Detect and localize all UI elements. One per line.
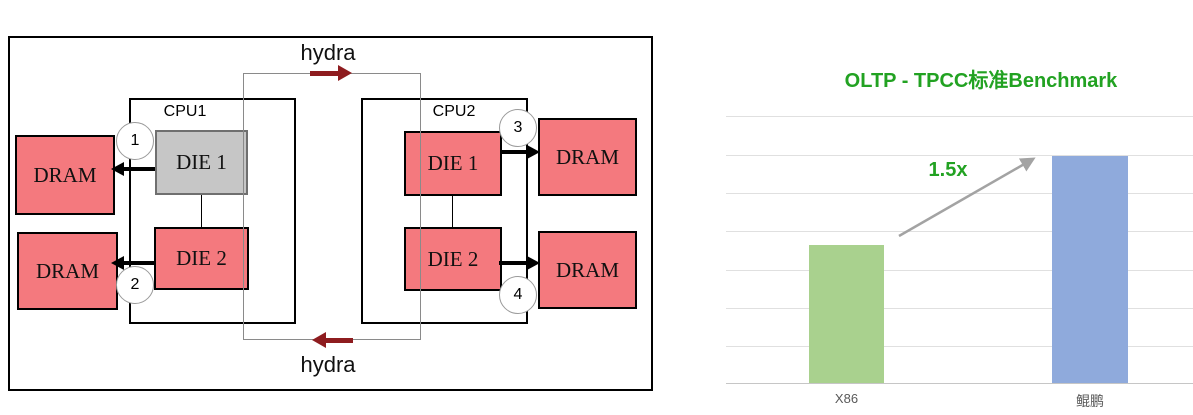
dram-box-bottom-right: DRAM: [538, 231, 637, 309]
gridline: [726, 116, 1193, 117]
arrow-head: [527, 145, 540, 159]
arrow-head: [338, 65, 352, 81]
slide-canvas: hydra hydra CPU1 CPU2 DRAM DRAM DRAM DRA…: [0, 0, 1193, 415]
memory-arrow-die2-right-icon: [499, 256, 540, 270]
hydra-arrow-right-icon: [310, 65, 352, 81]
arrow-shaft: [326, 338, 353, 343]
cpu1-die2-box: DIE 2: [154, 227, 249, 290]
cpu1-die-connector-line: [201, 195, 202, 227]
growth-annotation: 1.5x: [916, 159, 980, 182]
x-axis-label-x86: X86: [809, 391, 884, 406]
arrow-shaft: [124, 167, 155, 171]
arrow-shaft: [124, 261, 154, 265]
marker-circle-4: 4: [499, 276, 537, 314]
dram-box-top-right: DRAM: [538, 118, 637, 196]
cpu1-die1-box: DIE 1: [155, 130, 248, 195]
dram-box-top-left: DRAM: [15, 135, 115, 215]
arrow-shaft: [502, 150, 527, 154]
hydra-arrow-left-icon: [312, 332, 353, 348]
hydra-interconnect-loop: [243, 73, 421, 340]
memory-arrow-die1-right-icon: [502, 145, 540, 159]
hydra-top-label: hydra: [294, 40, 362, 66]
cpu2-die-connector-line: [452, 196, 453, 227]
dram-box-bottom-left: DRAM: [17, 232, 118, 310]
cpu1-label: CPU1: [129, 103, 241, 121]
bar-kunpeng: [1052, 156, 1128, 383]
bar-x86: [809, 245, 884, 383]
arrow-shaft: [310, 71, 338, 76]
x-axis-label-kunpeng: 鲲鹏: [1052, 391, 1128, 411]
arrow-head: [312, 332, 326, 348]
arrow-head: [111, 162, 124, 176]
marker-circle-1: 1: [116, 122, 154, 160]
arrow-head: [111, 256, 124, 270]
x-axis-line: [726, 383, 1193, 384]
arrow-shaft: [499, 261, 527, 265]
marker-circle-3: 3: [499, 109, 537, 147]
marker-circle-2: 2: [116, 266, 154, 304]
chart-title: OLTP - TPCC标准Benchmark: [761, 64, 1193, 93]
hydra-bottom-label: hydra: [294, 352, 362, 378]
arrow-head: [527, 256, 540, 270]
memory-arrow-die1-left-icon: [111, 162, 155, 176]
